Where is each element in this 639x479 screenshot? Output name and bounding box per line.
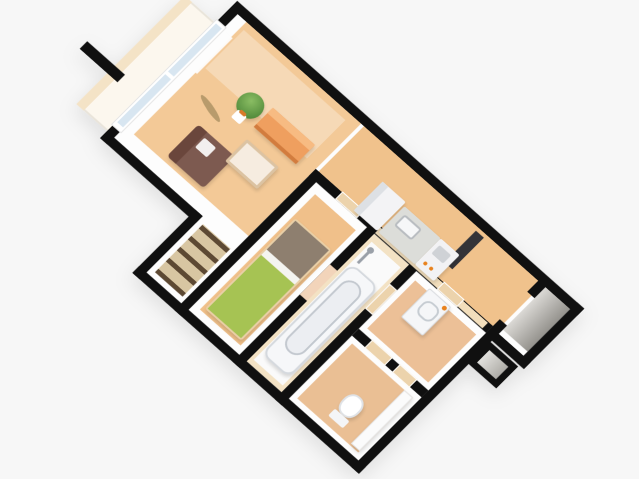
stove-knob-left (423, 261, 429, 266)
floorplan-render (0, 0, 639, 479)
stove-grill (431, 245, 451, 264)
stove-knob-right (428, 266, 434, 271)
washbasin-bowl (414, 298, 442, 325)
kitchen-sink (394, 214, 422, 240)
washbasin-accent (441, 305, 448, 312)
